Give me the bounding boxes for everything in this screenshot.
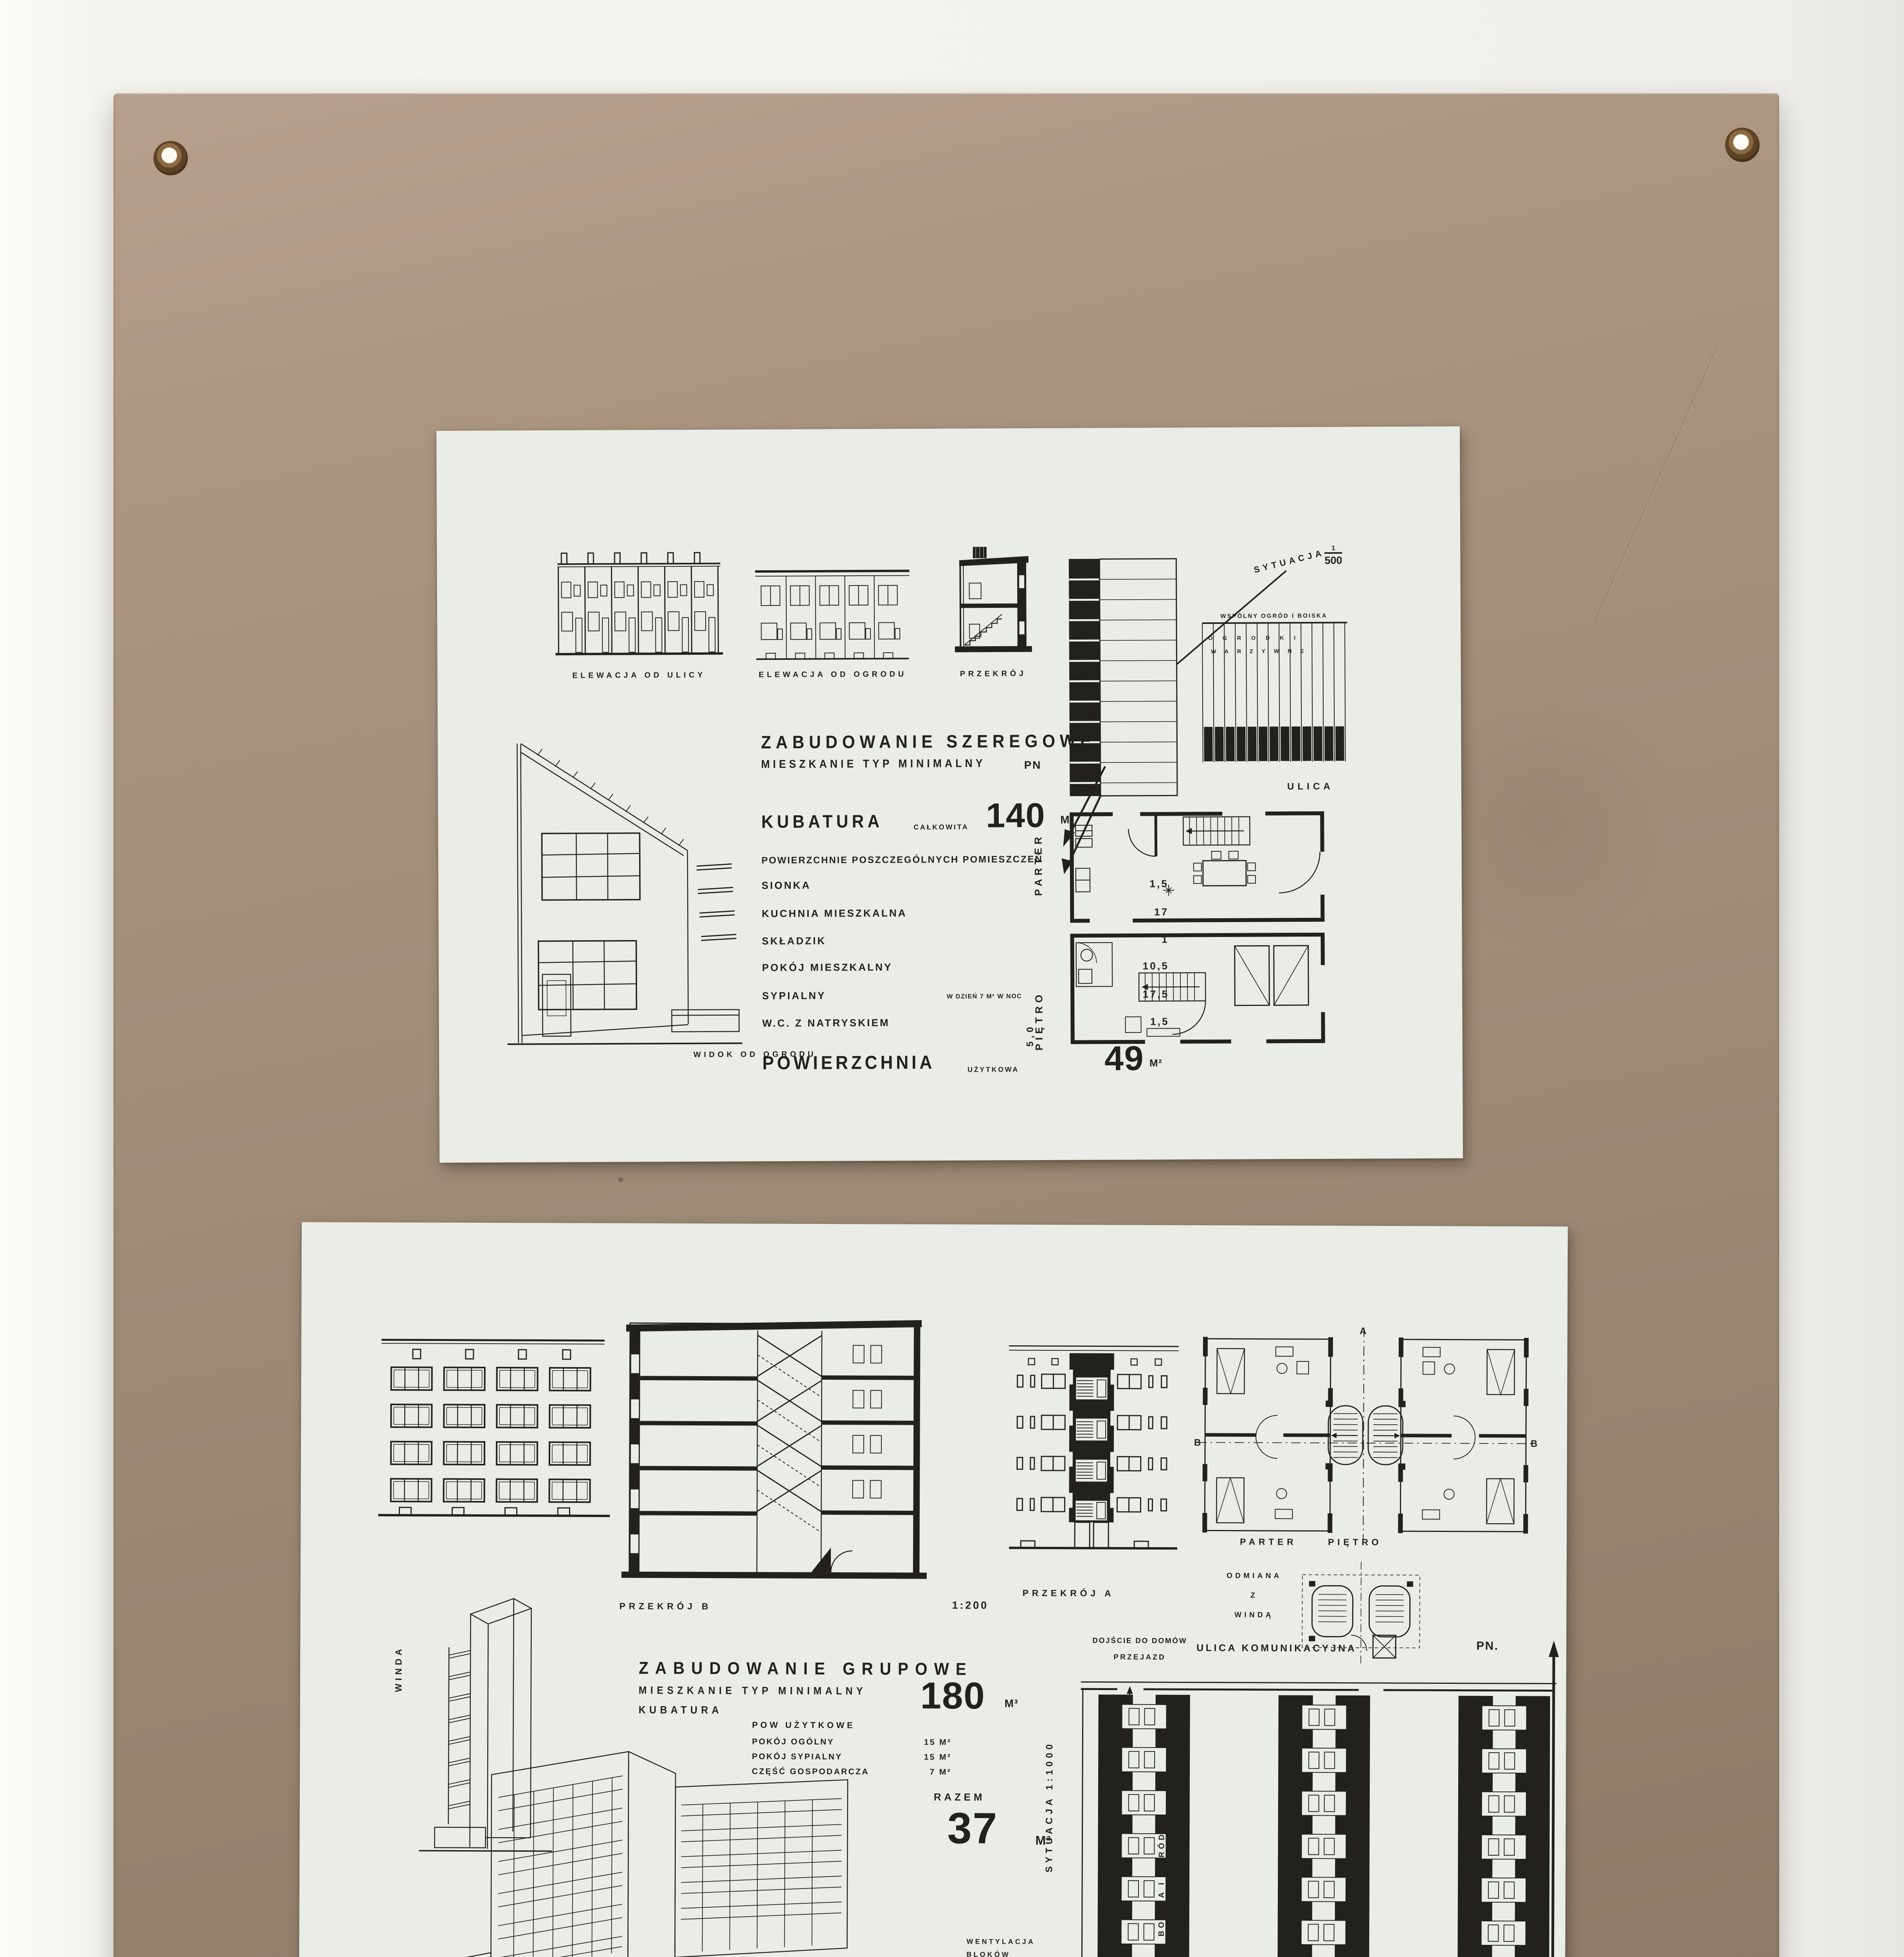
section-label: PRZEKRÓJ [950,669,1036,679]
room-name: POKÓJ MIESZKALNY [762,961,893,974]
upper-print-row-housing: ELEWACJA OD ULICY ELEWACJA OD OGRODU [436,426,1463,1162]
powierzchnia-label: POWIERZCHNIA [762,1052,935,1074]
house-section-drawing [951,544,1034,661]
room-name: SIONKA [762,879,811,892]
access-label-2: PRZEJAZD [1089,1653,1191,1662]
room-name: W.C. Z NATRYSKIEM [762,1017,890,1029]
powierzchnia-sublabel: UŻYTKOWA [967,1065,1019,1074]
photo-backdrop: ELEWACJA OD ULICY ELEWACJA OD OGRODU [0,0,1904,1957]
floor-plans-drawing [1066,809,1345,1049]
winda-label: WINDA [393,1598,404,1692]
room-name: KUCHNIA MIESZKALNA [762,907,907,920]
section-mark-a-top: A [1360,1326,1366,1337]
room-note: W DZIEŃ 7 M² W NOC [942,993,1027,1001]
upper-title: ZABUDOWANIE SZEREGOWE [761,730,1096,753]
parter-label: PARTER [1032,810,1045,896]
right-eyelet [1725,128,1760,162]
site-plan-1000-drawing [1070,1624,1562,1957]
areas-header: POWIERZCHNIE POSZCZEGÓLNYCH POMIESZCZEŃ [762,854,1043,866]
garden-elevation-label: ELEWACJA OD OGRODU [751,670,915,679]
room-name: SKŁADZIK [762,935,827,947]
lower-kubatura-unit: M³ [1005,1698,1019,1710]
room-value: 15 M² [924,1753,952,1762]
lower-print-group-housing: PRZEKRÓJ B 1:200 [299,1222,1568,1957]
vent-label-2: BLOKÓW [966,1950,1010,1957]
lower-subtitle: MIESZKANIE TYP MINIMALNY [639,1684,866,1697]
lower-kubatura-label: KUBATURA [639,1704,723,1716]
common-garden-header: WSPÓLNY OGRÓD I BOISKA [1220,612,1327,620]
street-elevation-drawing [550,547,727,663]
razem-label: RAZEM [934,1791,985,1803]
variant-label-1: ODMIANA [1221,1572,1288,1581]
street-komunikacyjna-label: ULICA KOMUNIKACYJNA [1196,1642,1356,1654]
plans-parter-label: PARTER [1240,1537,1297,1548]
front-elevation-drawing [375,1328,614,1532]
access-label-1: DOJŚCIE DO DOMÓW [1089,1636,1191,1645]
site-scale-denominator: 500 [1324,552,1342,567]
group-perspective-drawing [409,1727,895,1957]
room-value: 15 M² [924,1738,952,1747]
section-mark-b-right: B [1531,1438,1537,1449]
plan-scale-label: 5,0 [1025,1019,1036,1047]
cardboard-mount: ELEWACJA OD ULICY ELEWACJA OD OGRODU [113,93,1779,1957]
room-name: SYPIALNY [762,989,826,1002]
razem-value: 37 [947,1803,998,1853]
variant-label-3: WINDĄ [1221,1611,1287,1620]
garden-elevation-drawing [752,564,913,666]
upper-subtitle: MIESZKANIE TYP MINIMALNY [761,757,986,771]
section-b-label: PRZEKRÓJ B [620,1601,712,1612]
variant-label-2: Z [1221,1591,1288,1600]
site-scale-numerator: 1 [1331,544,1335,552]
street-label: ULICA [1287,781,1334,793]
section-mark-b-left: B [1194,1437,1201,1448]
section-b-drawing [618,1307,932,1598]
site-1000-label: SYTUACJA 1:1000 [1044,1669,1056,1872]
lower-kubatura-value: 180 [920,1674,985,1718]
left-eyelet [153,141,188,175]
section-a-label: PRZEKRÓJ A [1023,1588,1115,1599]
north-label: PN [1024,759,1042,771]
garden-view-perspective-drawing [483,715,750,1069]
vent-label-1: WENTYLACJA [967,1937,1035,1946]
street-elevation-label: ELEWACJA OD ULICY [549,670,729,680]
room-value: 7 M² [930,1768,952,1777]
typical-plans-drawing: A B B [1193,1325,1538,1549]
powierzchnia-unit: M² [1149,1057,1162,1069]
common-grounds-label: WSPÓLNE BOISKA I OGRÓD [1157,1785,1167,1957]
north-label-lower: PN. [1476,1640,1499,1653]
scale-200-label: 1:200 [952,1599,989,1611]
board-crease [1595,348,1718,621]
kubatura-sublabel: CAŁKOWITA [913,823,969,832]
section-a-drawing [1005,1338,1182,1566]
board-speck [618,1177,623,1182]
site-scale-fraction: 1 500 [1324,544,1342,567]
garden-plots-letters-1: OGRODKI [1208,634,1306,641]
kubatura-label: KUBATURA [761,811,883,832]
plans-pietro-label: PIĘTRO [1328,1537,1382,1548]
garden-plots-letters-2: WARZYWNE [1211,648,1312,654]
